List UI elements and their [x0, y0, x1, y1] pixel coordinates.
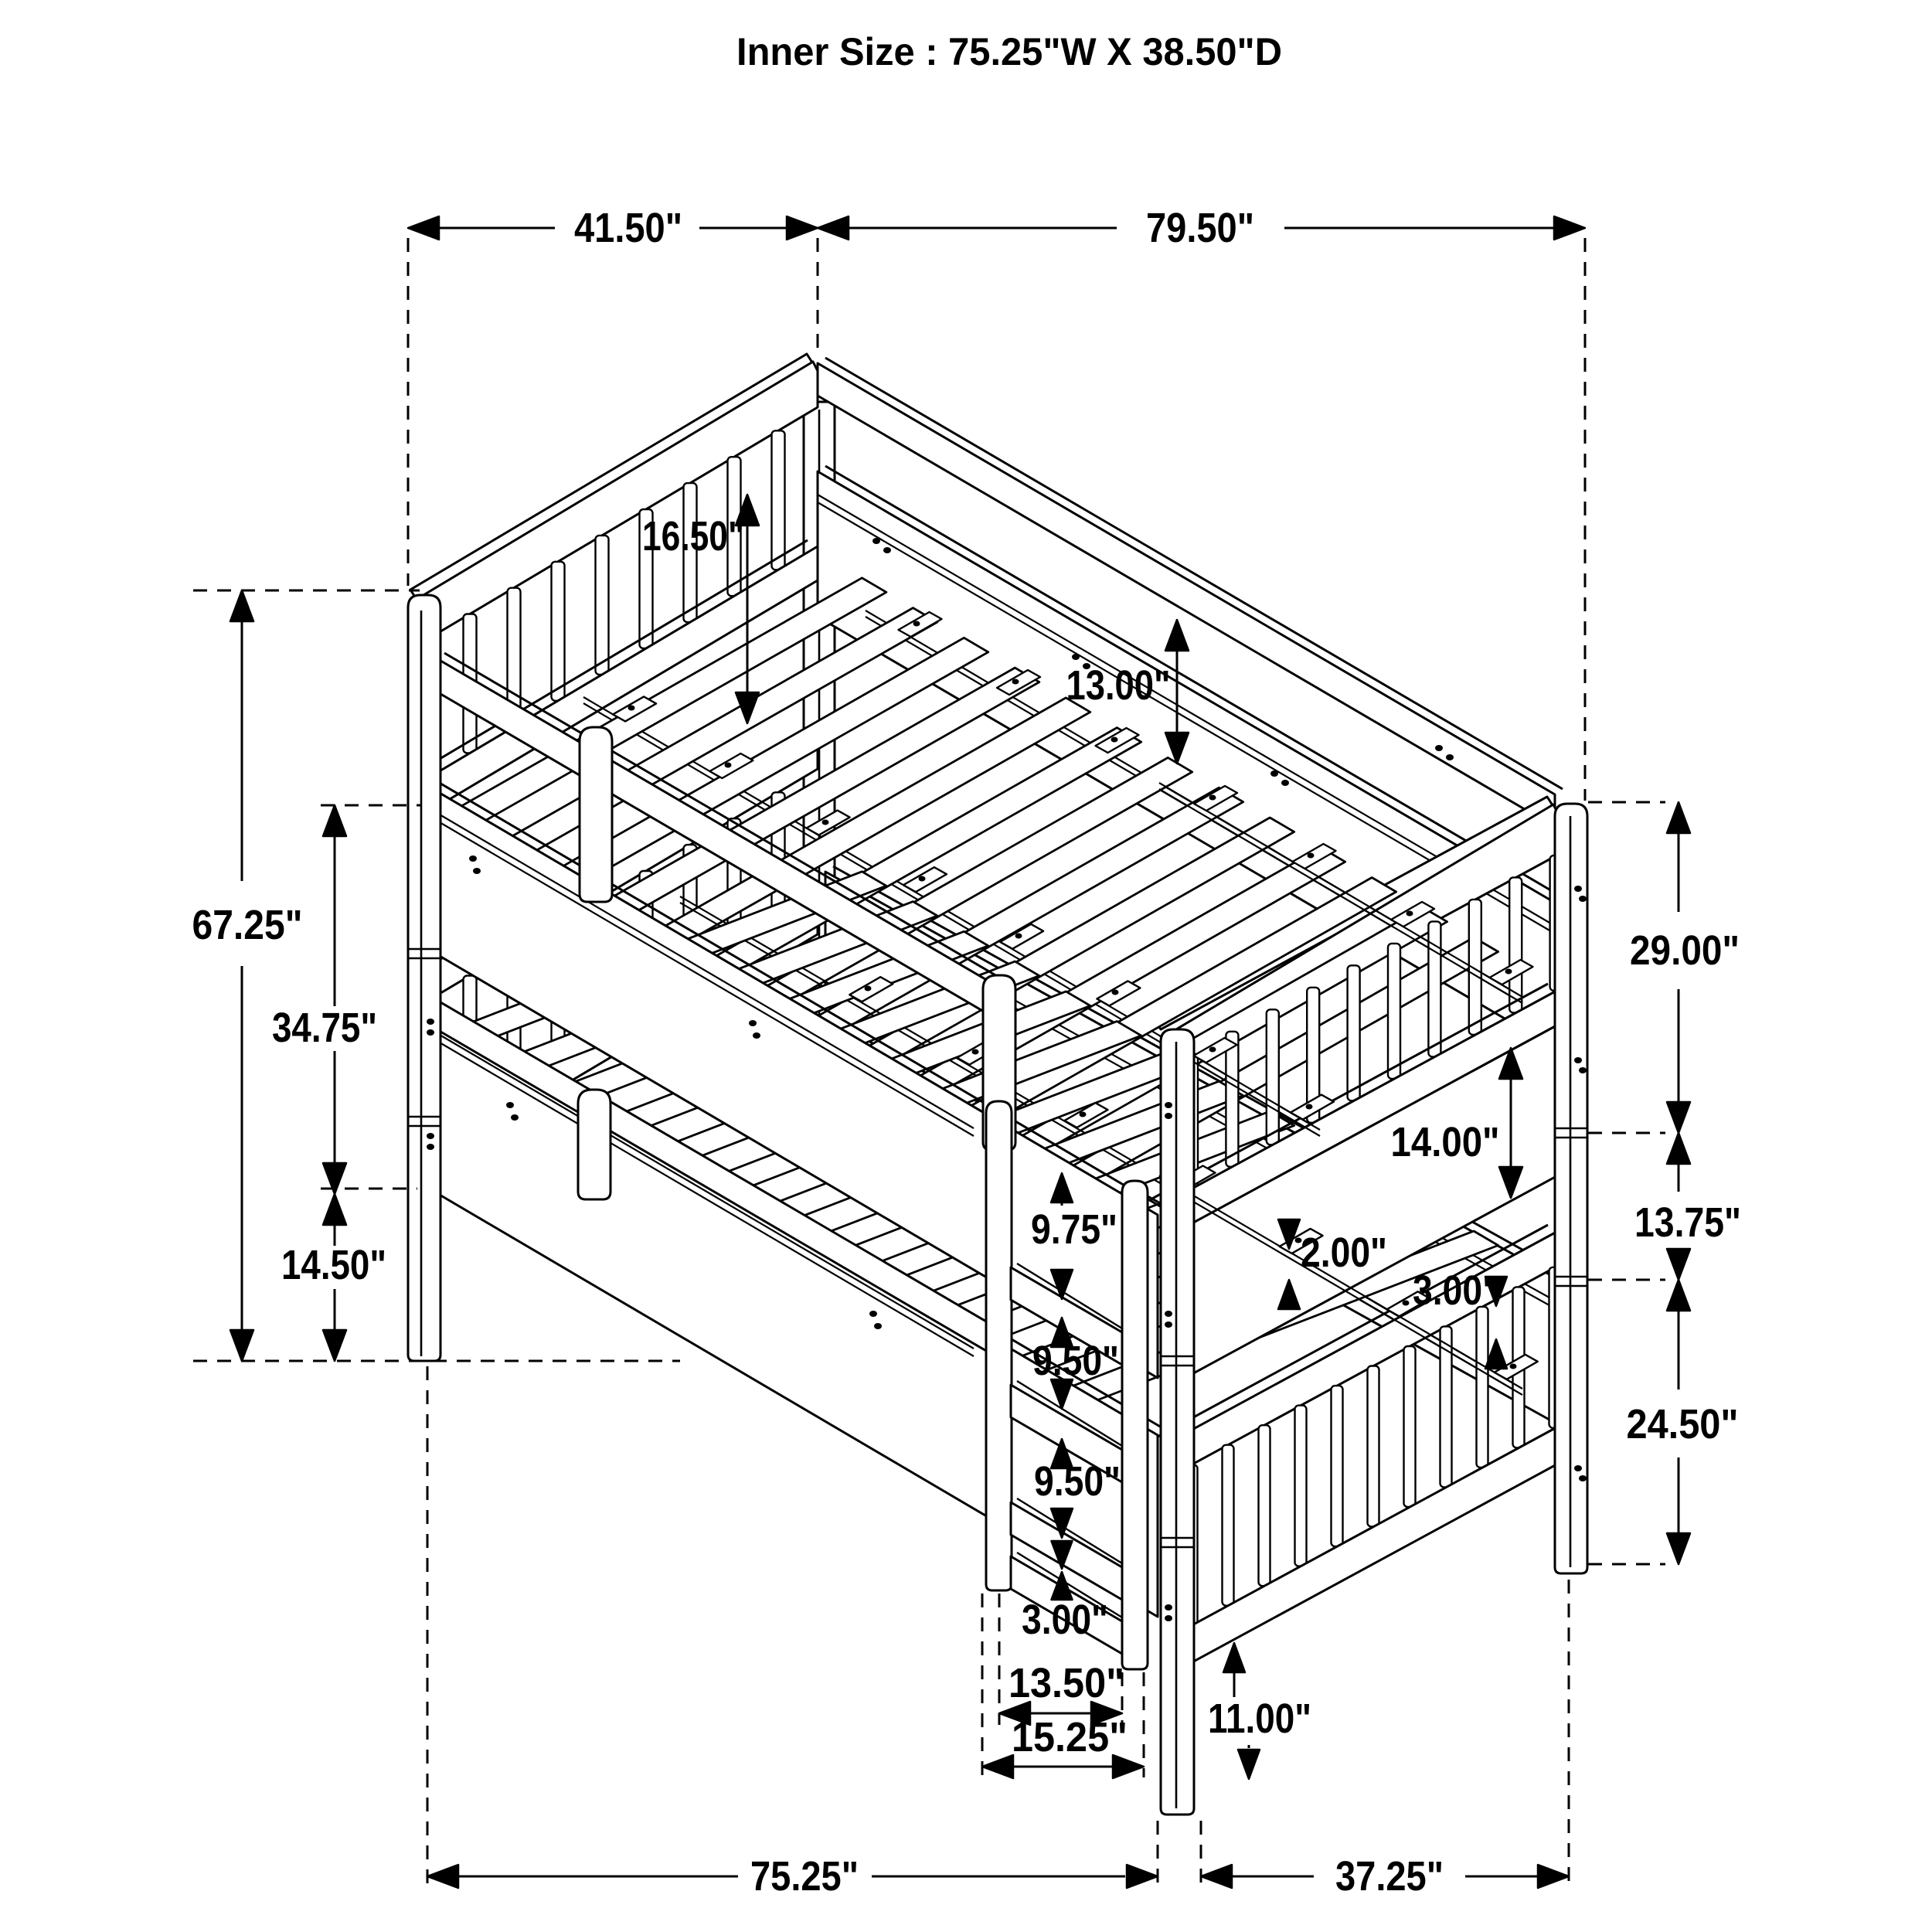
svg-text:11.00": 11.00"	[1208, 1696, 1311, 1742]
svg-text:75.25": 75.25"	[750, 1853, 859, 1900]
svg-text:13.00": 13.00"	[1066, 662, 1171, 709]
svg-text:3.00": 3.00"	[1022, 1597, 1108, 1643]
svg-text:15.25": 15.25"	[1012, 1714, 1128, 1760]
svg-text:41.50": 41.50"	[574, 205, 682, 251]
svg-text:16.50": 16.50"	[642, 513, 744, 560]
svg-text:9.75": 9.75"	[1031, 1206, 1117, 1253]
svg-text:24.50": 24.50"	[1627, 1401, 1739, 1447]
svg-text:2.00": 2.00"	[1301, 1230, 1387, 1276]
svg-text:9.50": 9.50"	[1034, 1458, 1121, 1505]
svg-text:13.50": 13.50"	[1009, 1660, 1124, 1706]
svg-text:67.25": 67.25"	[192, 902, 303, 948]
svg-text:14.50": 14.50"	[281, 1242, 386, 1288]
svg-text:37.25": 37.25"	[1335, 1853, 1444, 1900]
svg-text:79.50": 79.50"	[1146, 205, 1254, 251]
svg-text:3.00": 3.00"	[1413, 1267, 1499, 1314]
svg-text:34.75": 34.75"	[272, 1005, 377, 1051]
svg-text:13.75": 13.75"	[1634, 1199, 1741, 1246]
svg-text:Inner Size : 75.25"W X 38.50": Inner Size : 75.25"W X 38.50"D	[736, 30, 1282, 73]
svg-text:14.00": 14.00"	[1391, 1119, 1500, 1165]
svg-text:9.50": 9.50"	[1032, 1338, 1119, 1384]
svg-text:29.00": 29.00"	[1630, 927, 1740, 974]
